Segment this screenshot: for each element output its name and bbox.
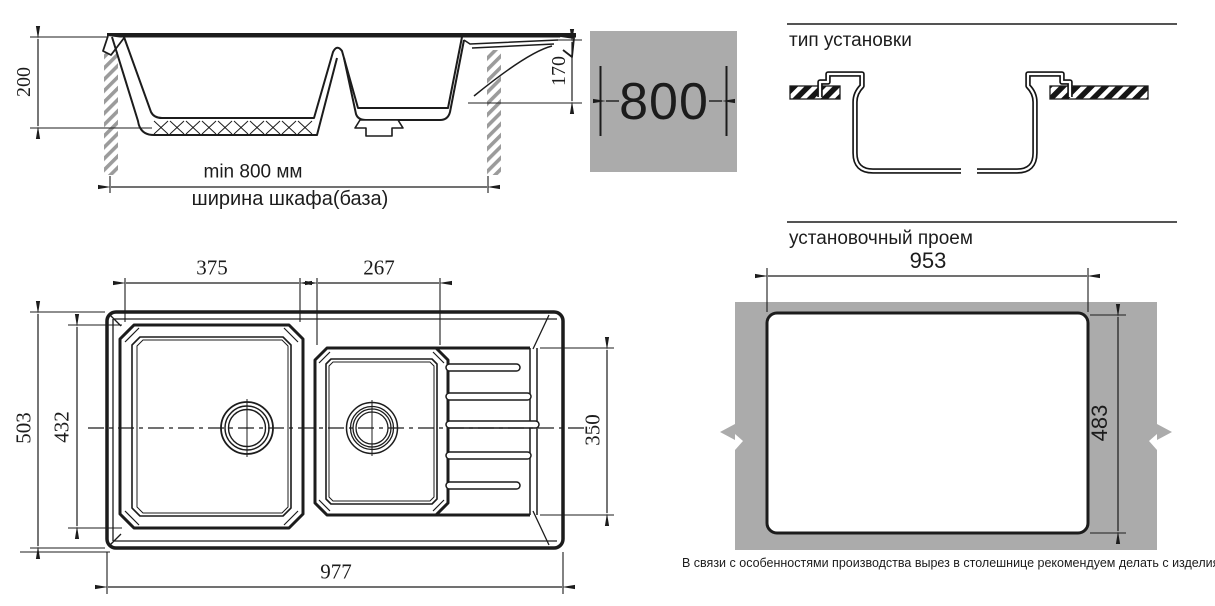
dim-label-483: 483 [1089,405,1111,442]
min-width-label: min 800 мм [204,163,303,182]
install-type-title: тип установки [789,30,912,52]
cutout-hole [767,313,1088,533]
cutout-note: В связи с особенностями производства выр… [682,556,1215,570]
dim-200 [30,37,152,128]
dim-label-200: 200 [14,67,34,97]
dim-label-267: 267 [363,258,395,279]
countertop-left [790,86,840,99]
dim-label-503: 503 [14,412,35,444]
cutout-title: установочный проем [789,228,973,250]
side-section-drawing [30,33,582,193]
dim-label-432: 432 [52,411,73,443]
dim-label-953: 953 [910,250,947,272]
dim-label-977: 977 [320,562,352,583]
dim-label-350: 350 [583,414,604,446]
cabinet-wall-left [104,50,118,175]
countertop-right [1050,86,1148,99]
dim-label-375: 375 [196,258,228,279]
top-view-drawing [20,278,614,594]
dim-label-170: 170 [549,56,569,86]
cabinet-width-label: ширина шкафа(база) [192,189,389,209]
sink-spec-sheet: 200 170 min 800 мм ширина шкафа(база) 80… [0,0,1215,606]
install-type-drawing [787,24,1177,222]
cabinet-wall-right [487,50,501,175]
technical-drawing [0,0,1215,606]
dim-977 [20,552,563,594]
badge-800-value: 800 [619,76,709,128]
